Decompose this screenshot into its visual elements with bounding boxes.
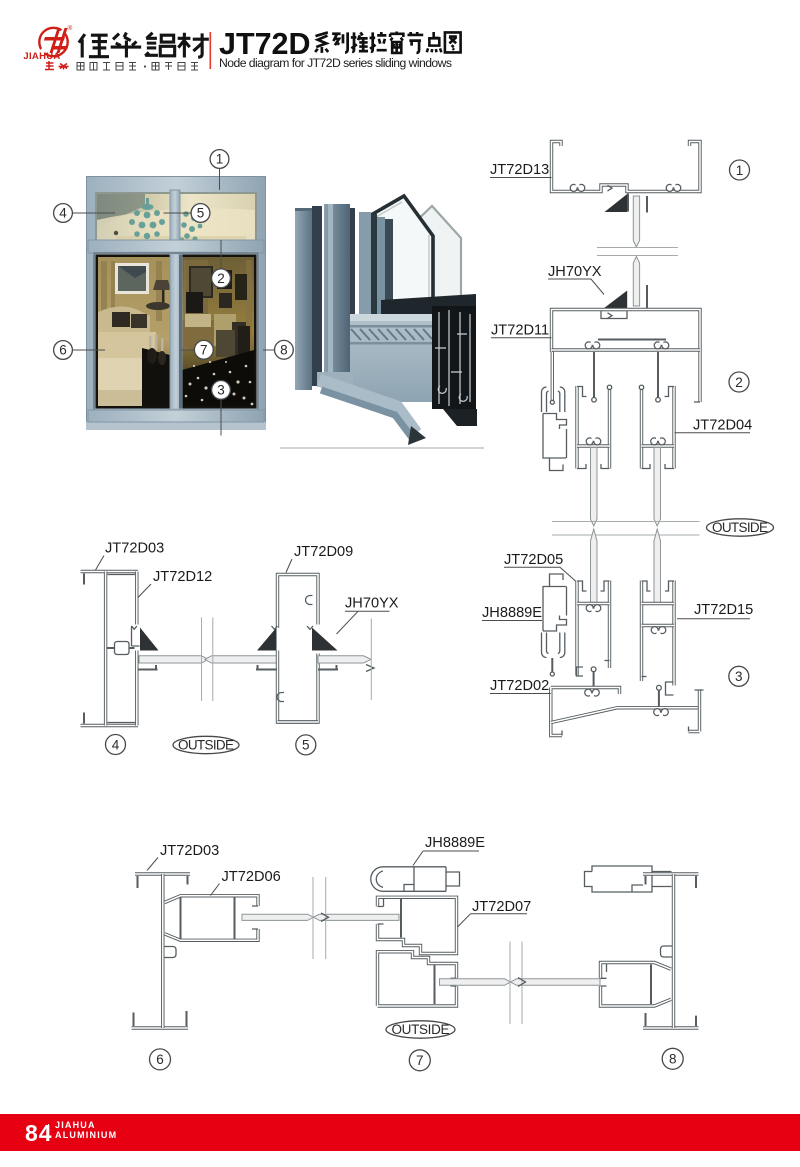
- svg-text:JT72D11: JT72D11: [491, 323, 549, 339]
- svg-text:1: 1: [216, 152, 224, 167]
- svg-text:7: 7: [416, 1053, 424, 1068]
- svg-text:6: 6: [156, 1052, 164, 1067]
- svg-text:3: 3: [735, 669, 743, 684]
- svg-text:JH8889E: JH8889E: [482, 605, 542, 621]
- svg-text:4: 4: [112, 737, 120, 752]
- svg-text:OUTSIDE: OUTSIDE: [178, 738, 234, 753]
- svg-text:JT72D13: JT72D13: [490, 162, 549, 178]
- svg-text:2: 2: [735, 375, 743, 390]
- svg-text:5: 5: [197, 206, 205, 221]
- svg-text:OUTSIDE: OUTSIDE: [392, 1022, 450, 1037]
- svg-text:JH70YX: JH70YX: [548, 264, 602, 280]
- svg-text:JT72D07: JT72D07: [472, 899, 531, 915]
- svg-text:8: 8: [669, 1052, 677, 1067]
- svg-text:2: 2: [217, 271, 225, 286]
- svg-text:JT72D04: JT72D04: [693, 418, 752, 434]
- svg-text:JH70YX: JH70YX: [345, 596, 399, 612]
- svg-text:JT72D12: JT72D12: [153, 569, 212, 585]
- svg-text:JT72D02: JT72D02: [490, 678, 549, 694]
- svg-text:7: 7: [200, 342, 208, 357]
- svg-text:JT72D03: JT72D03: [160, 843, 219, 859]
- svg-text:JT72D06: JT72D06: [222, 869, 281, 885]
- svg-text:OUTSIDE: OUTSIDE: [712, 520, 768, 535]
- svg-text:3: 3: [217, 383, 225, 398]
- svg-text:JT72D03: JT72D03: [105, 541, 164, 557]
- svg-text:8: 8: [280, 342, 288, 357]
- svg-text:JT72D15: JT72D15: [694, 602, 753, 618]
- svg-text:JT72D05: JT72D05: [504, 552, 563, 568]
- svg-text:JH8889E: JH8889E: [425, 835, 485, 851]
- svg-text:JT72D09: JT72D09: [294, 544, 353, 560]
- svg-text:5: 5: [302, 738, 310, 753]
- svg-text:4: 4: [59, 206, 67, 221]
- svg-text:6: 6: [59, 343, 67, 358]
- svg-text:1: 1: [736, 163, 744, 178]
